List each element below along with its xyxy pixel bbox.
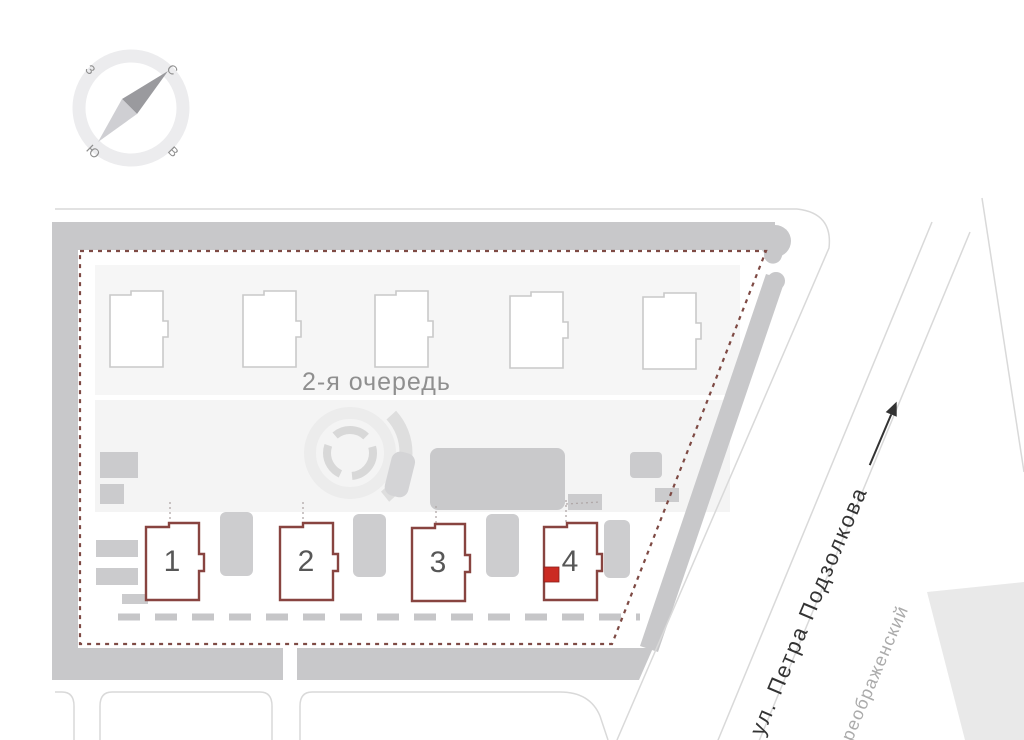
block-between-2-3 bbox=[353, 514, 386, 577]
road-bottom-right bbox=[297, 648, 653, 680]
selected-unit-marker[interactable] bbox=[544, 567, 559, 582]
neighbor-block bbox=[927, 582, 1024, 740]
compass: С З Ю В bbox=[79, 56, 183, 162]
building-1-number: 1 bbox=[164, 545, 181, 578]
road-edge-bottom-3 bbox=[300, 692, 608, 740]
block-upper-right-1 bbox=[630, 452, 662, 478]
building-4-number: 4 bbox=[562, 545, 579, 578]
road-edge-far-right bbox=[982, 198, 1024, 472]
footprint-1 bbox=[110, 291, 168, 367]
left-block-5 bbox=[122, 594, 148, 604]
block-right-of-4 bbox=[604, 520, 630, 578]
district-name-label: реображенский bbox=[837, 602, 912, 740]
block-between-1-2 bbox=[220, 512, 253, 576]
footprint-5 bbox=[643, 293, 701, 369]
street-edge-left bbox=[716, 222, 932, 740]
block-between-3-4 bbox=[486, 514, 519, 577]
phase-label: 2-я очередь bbox=[302, 368, 451, 396]
left-block-1 bbox=[100, 452, 138, 478]
road-edge-bottom-2 bbox=[100, 692, 272, 740]
road-diagonal-cap bbox=[767, 272, 785, 290]
road-top bbox=[55, 222, 775, 250]
footprint-2 bbox=[243, 291, 301, 367]
site-plan-map: 1 2 3 4 2-я очередь ул. Петра Подзолкова… bbox=[0, 0, 1024, 740]
street-label-group: ул. Петра Подзолкова bbox=[745, 397, 909, 739]
road-bottom-left bbox=[52, 648, 283, 680]
block-upper-right-2 bbox=[655, 488, 679, 502]
street-arrow-shaft bbox=[870, 414, 891, 465]
road-edge-bottom-1 bbox=[55, 692, 74, 740]
left-block-4 bbox=[96, 568, 138, 585]
footprint-4 bbox=[510, 292, 568, 368]
courtyard-block-center bbox=[430, 448, 565, 510]
building-2-number: 2 bbox=[298, 545, 315, 578]
left-block-3 bbox=[96, 540, 138, 557]
building-3-number: 3 bbox=[430, 546, 447, 579]
footprint-3 bbox=[375, 291, 433, 367]
district-label-group: реображенский bbox=[837, 602, 912, 740]
road-left bbox=[52, 222, 78, 680]
left-block-2 bbox=[100, 484, 124, 504]
